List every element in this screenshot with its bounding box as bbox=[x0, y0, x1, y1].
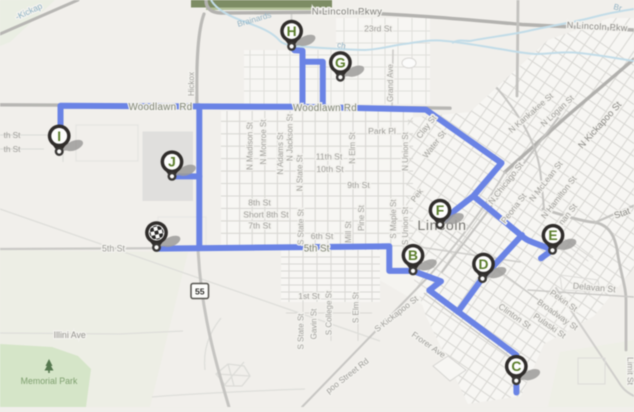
svg-text:S College St: S College St bbox=[325, 290, 334, 335]
svg-text:J: J bbox=[168, 155, 176, 170]
svg-text:Grand Ave: Grand Ave bbox=[386, 64, 395, 102]
svg-text:Illini Ave: Illini Ave bbox=[54, 330, 86, 340]
svg-text:9th St: 9th St bbox=[347, 180, 370, 190]
svg-text:8th St: 8th St bbox=[248, 198, 271, 208]
svg-text:23rd St: 23rd St bbox=[364, 24, 392, 34]
svg-text:Hickox: Hickox bbox=[187, 72, 196, 96]
svg-text:7th St: 7th St bbox=[248, 221, 271, 231]
svg-text:Park Pl: Park Pl bbox=[368, 126, 396, 136]
svg-text:6th St: 6th St bbox=[311, 231, 334, 241]
svg-text:S State St: S State St bbox=[297, 313, 306, 350]
svg-text:th St: th St bbox=[4, 131, 22, 140]
svg-text:5th St: 5th St bbox=[102, 244, 126, 254]
svg-text:Woodlawn Rd: Woodlawn Rd bbox=[128, 102, 192, 113]
svg-text:D: D bbox=[479, 257, 489, 272]
svg-text:N Madison St: N Madison St bbox=[246, 121, 255, 170]
svg-text:Short 8th St: Short 8th St bbox=[243, 210, 289, 220]
svg-text:S Elm St: S Elm St bbox=[352, 291, 361, 323]
svg-text:Gavin St: Gavin St bbox=[310, 308, 319, 339]
svg-text:I: I bbox=[57, 129, 61, 144]
svg-text:Mill St: Mill St bbox=[344, 220, 353, 243]
svg-text:N State St: N State St bbox=[296, 154, 305, 191]
svg-text:G: G bbox=[335, 55, 346, 70]
svg-text:N Elm St: N Elm St bbox=[348, 131, 357, 163]
svg-text:N Jackson St: N Jackson St bbox=[286, 113, 295, 161]
svg-text:5th St: 5th St bbox=[304, 244, 330, 255]
svg-text:B: B bbox=[408, 248, 418, 263]
svg-text:Woodlawn Rd: Woodlawn Rd bbox=[293, 103, 357, 114]
svg-text:C: C bbox=[511, 359, 521, 374]
svg-text:1st St: 1st St bbox=[298, 291, 320, 301]
svg-text:Memorial Park: Memorial Park bbox=[21, 376, 78, 386]
svg-text:Limit St: Limit St bbox=[626, 357, 634, 386]
svg-text:N Monroe St: N Monroe St bbox=[259, 119, 268, 165]
svg-text:H: H bbox=[287, 24, 297, 39]
svg-text:S Maple St: S Maple St bbox=[389, 199, 398, 239]
svg-text:th St: th St bbox=[4, 145, 22, 154]
svg-text:55: 55 bbox=[195, 286, 205, 296]
svg-text:E: E bbox=[548, 228, 557, 243]
svg-text:S State St: S State St bbox=[297, 208, 306, 245]
svg-text:N Union St: N Union St bbox=[401, 131, 410, 170]
svg-text:F: F bbox=[436, 203, 444, 218]
svg-text:N Adams St: N Adams St bbox=[276, 132, 285, 175]
svg-text:Pine St: Pine St bbox=[357, 204, 366, 231]
svg-text:N Lincoln Pkwy: N Lincoln Pkwy bbox=[312, 7, 383, 18]
svg-text:11th St: 11th St bbox=[316, 152, 343, 162]
svg-text:10th St: 10th St bbox=[316, 164, 344, 174]
svg-text:S Union St: S Union St bbox=[401, 206, 410, 245]
